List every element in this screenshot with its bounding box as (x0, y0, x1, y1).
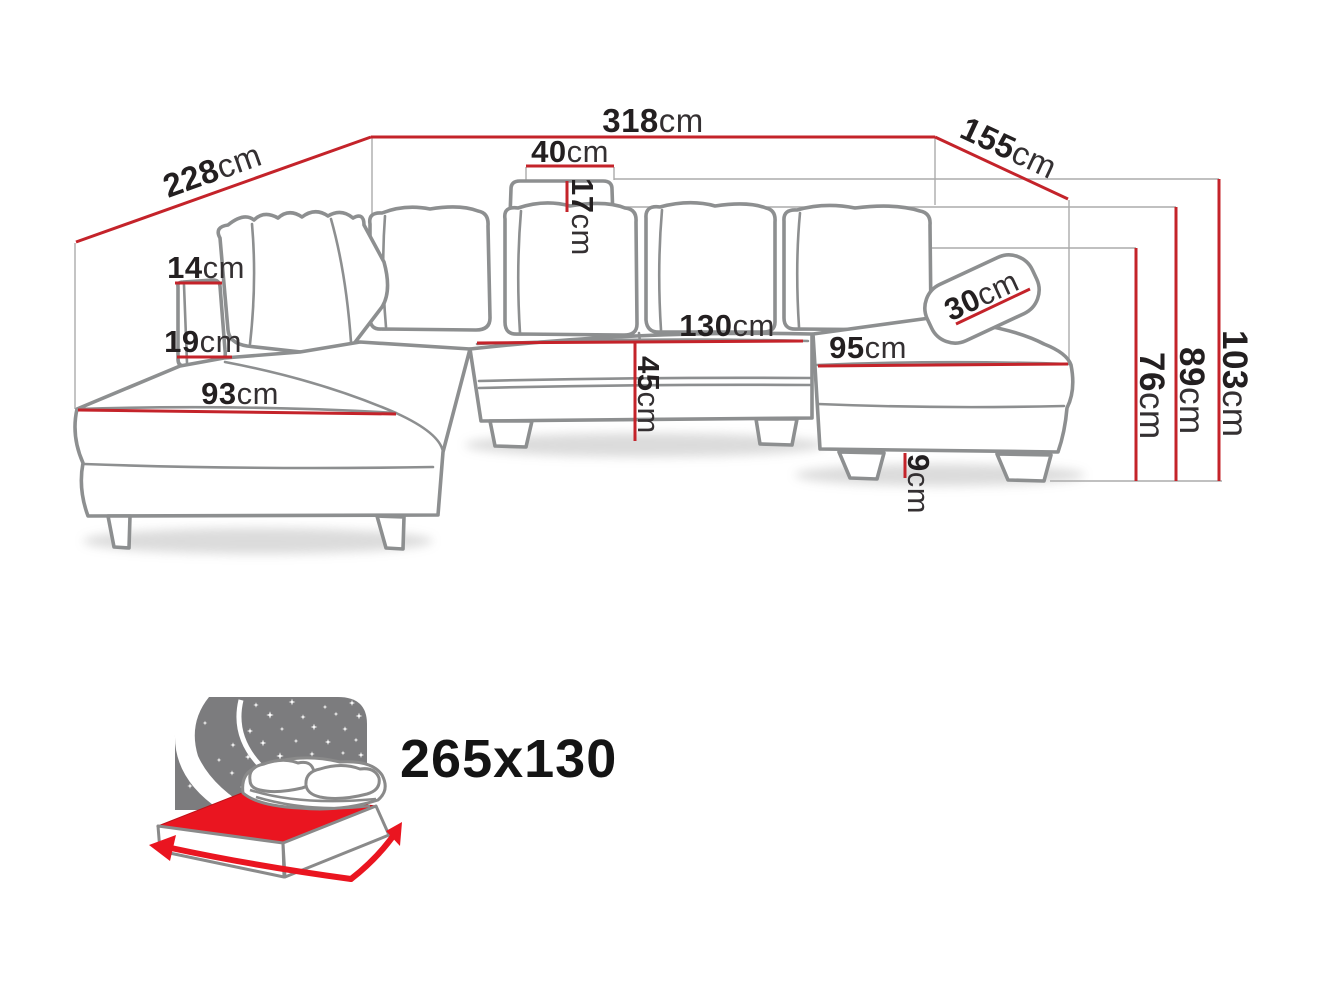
sleeping-function-icon: 265x130 (149, 697, 617, 879)
dimension-label-93: 93cm (201, 376, 279, 411)
pillow-icon (306, 766, 379, 799)
dimension-label-19: 19cm (164, 324, 242, 359)
dimension-label-103: 103cm (1215, 330, 1254, 438)
dimension-label-318: 318cm (602, 102, 704, 139)
sofa-dimension-diagram: 318cm 228cm 155cm 40cm 17cm 14cm 19cm 93… (0, 0, 1326, 995)
dimension-label-89: 89cm (1172, 347, 1211, 435)
dimension-label-45: 45cm (631, 356, 666, 434)
dimension-label-40: 40cm (531, 134, 609, 169)
middle-leg (756, 419, 797, 445)
pillow-icon (250, 760, 314, 791)
bed-icon (149, 758, 402, 879)
diagram-page: 318cm 228cm 155cm 40cm 17cm 14cm 19cm 93… (0, 0, 1326, 995)
back-pillows (370, 203, 931, 335)
dimension-label-9: 9cm (901, 454, 936, 514)
dimension-label-130: 130cm (679, 308, 775, 343)
dimension-label-155: 155cm (955, 109, 1063, 185)
dimension-label-17: 17cm (565, 178, 600, 256)
right-chaise-leg (997, 454, 1051, 481)
middle-leg (490, 421, 532, 447)
dimension-label-76: 76cm (1132, 352, 1171, 440)
sleeping-size-label: 265x130 (400, 729, 617, 789)
dimension-label-95: 95cm (829, 330, 907, 365)
left-chaise (75, 342, 470, 549)
dimension-label-14: 14cm (167, 250, 245, 285)
